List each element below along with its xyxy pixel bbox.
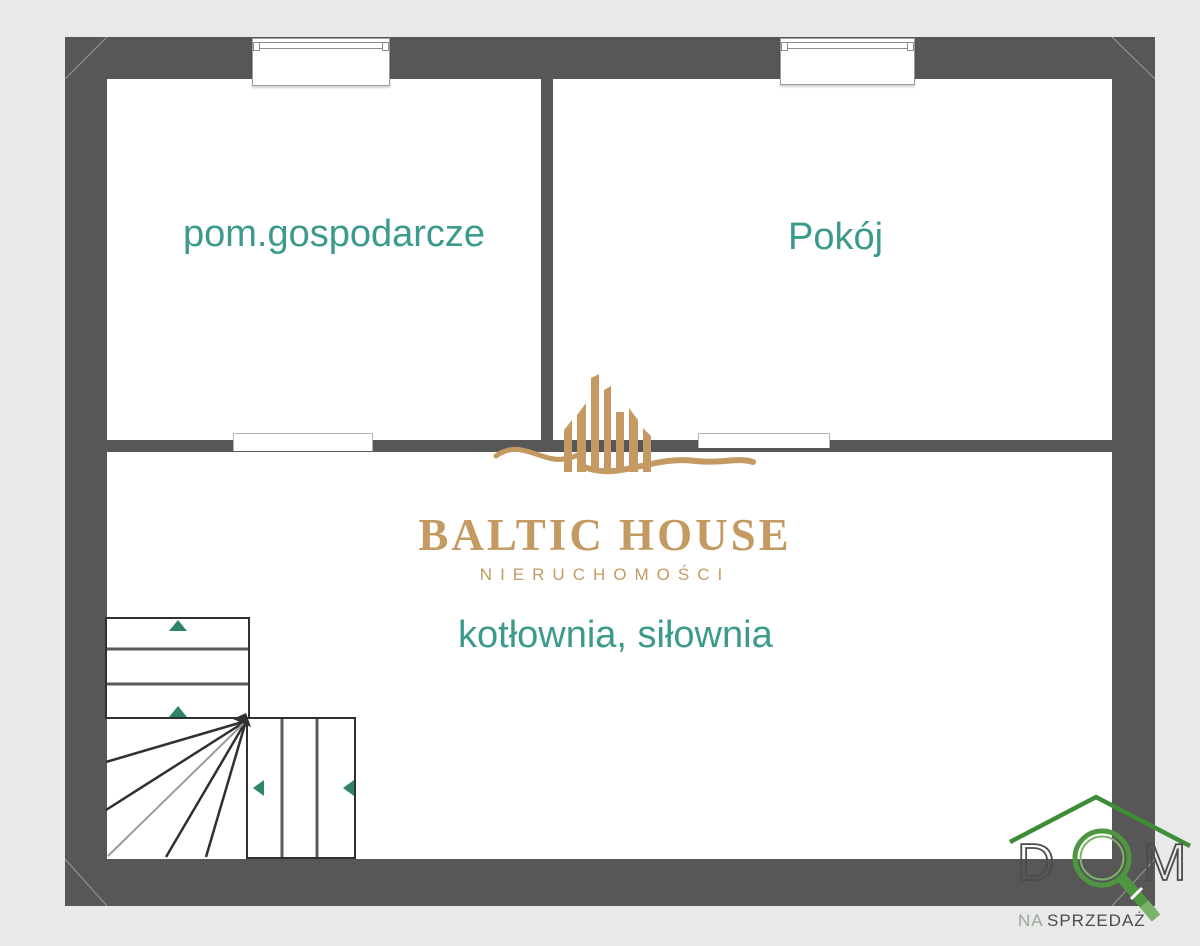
room-label-pokoj: Pokój [788,217,883,259]
stairs [100,610,360,865]
window [780,38,915,85]
baltic-house-subtitle: NIERUCHOMOŚCI [430,565,780,585]
floor-plan-image: pom.gospodarcze Pokój kotłownia, siłowni… [0,0,1200,946]
room-label-kotlownia: kotłownia, siłownia [458,615,773,657]
window-glass-icon [783,42,912,49]
baltic-house-name: BALTIC HOUSE [405,509,805,561]
baltic-house-logo-icon [480,368,770,483]
room-label-pom-gospodarcze: pom.gospodarcze [183,214,485,256]
dom-letter-m: M [1143,834,1186,892]
dom-na-sprzedaz-logo: D M NA SPRZEDAŻ [1000,780,1200,946]
tagline-sprzedaz: SPRZEDAŻ [1047,911,1146,930]
tagline-na: NA [1018,911,1044,930]
window [252,38,390,86]
door-opening [233,433,373,451]
dom-letter-d: D [1017,834,1055,892]
wave-icon [496,449,753,471]
stair-upper-run [106,618,249,718]
window-glass-icon [255,42,387,49]
